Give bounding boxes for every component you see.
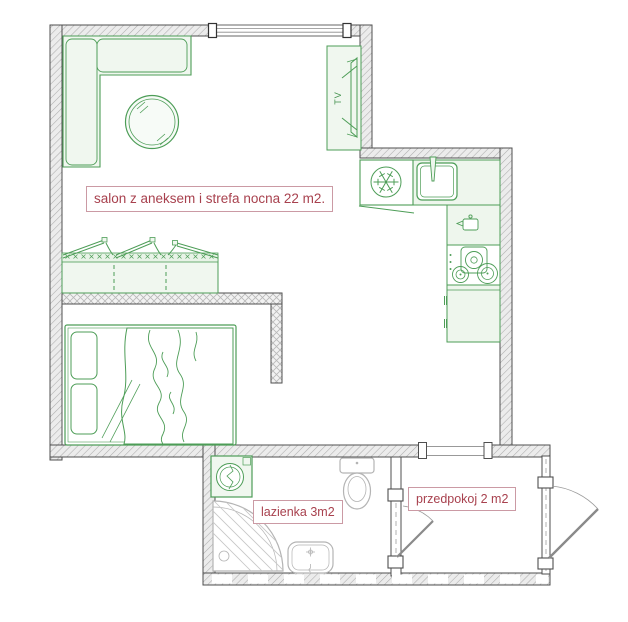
kitchen-annex xyxy=(359,157,500,342)
wardrobe-rail xyxy=(62,253,218,262)
window xyxy=(209,24,352,38)
washing-machine xyxy=(211,456,252,497)
fridge-door-swing xyxy=(359,206,414,213)
entry-door-leaf xyxy=(549,509,598,558)
toilet xyxy=(340,458,374,509)
corner-sofa xyxy=(63,36,191,167)
bathroom-door-leaf xyxy=(397,521,433,557)
wall-left xyxy=(50,25,62,460)
tv-label: TV xyxy=(333,91,343,105)
floor-plan-drawing: TV xyxy=(0,0,628,622)
wall-hall-top xyxy=(492,445,550,457)
wall-kitchen-top xyxy=(360,148,512,158)
window-jamb-right xyxy=(343,24,351,38)
shower-drain xyxy=(219,551,229,561)
door-jamb xyxy=(388,489,403,501)
entry-door-swing xyxy=(552,486,598,509)
door-jamb xyxy=(538,558,553,569)
partition-vertical xyxy=(271,304,282,383)
wall-right-main xyxy=(500,148,512,457)
entry-door xyxy=(538,456,598,574)
wall-top-left xyxy=(50,25,213,36)
kitchen-sink xyxy=(417,157,457,200)
bathroom-door xyxy=(388,457,433,576)
wardrobe xyxy=(62,238,218,294)
fridge xyxy=(359,160,414,213)
room-label-przedpokoj: przedpokoj 2 m2 xyxy=(408,487,516,511)
blanket xyxy=(122,328,233,444)
room-label-lazienka: lazienka 3m2 xyxy=(253,500,343,524)
gas-stove xyxy=(447,245,500,285)
wall-bottom-main xyxy=(50,445,423,457)
floor-plan: TV xyxy=(0,0,628,622)
passage-opening xyxy=(419,443,493,459)
door-jamb xyxy=(388,556,403,568)
round-table xyxy=(126,96,179,149)
door-jamb xyxy=(538,477,553,488)
window-jamb-left xyxy=(209,24,217,38)
wall-upper-right xyxy=(360,25,372,158)
washbasin xyxy=(288,542,333,573)
partition-horizontal xyxy=(62,293,282,304)
room-label-salon: salon z aneksem i strefa nocna 22 m2. xyxy=(86,186,333,212)
kitchen-cabinet xyxy=(445,285,501,342)
double-bed xyxy=(65,325,236,445)
small-appliance-cabinet xyxy=(447,205,500,245)
